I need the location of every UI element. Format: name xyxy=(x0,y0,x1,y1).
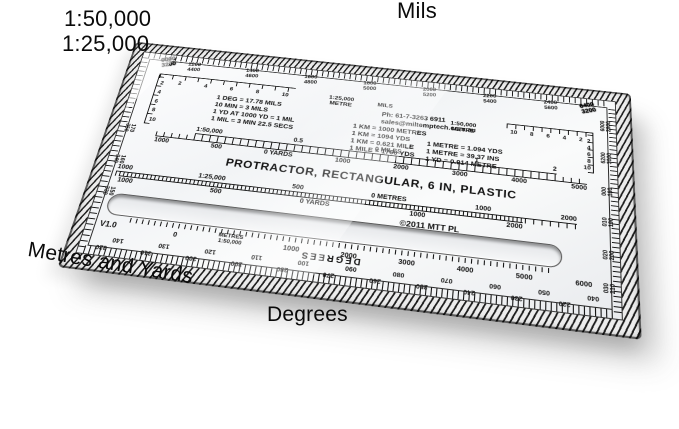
scale-number: 2 xyxy=(579,137,583,143)
number-pair: 12004400 xyxy=(187,63,202,73)
scale-number: 230 xyxy=(511,293,523,302)
scale-number: 2000 xyxy=(561,215,577,223)
scale-number: 220 xyxy=(559,299,571,308)
annotation-degrees: Degrees xyxy=(267,303,348,327)
number-pair: 18005000 xyxy=(363,81,377,91)
number-pair: 60002800 xyxy=(601,120,614,132)
scale-number: 8 xyxy=(151,107,159,113)
scale-number: 050 xyxy=(538,288,550,297)
scale-number: 1 xyxy=(475,158,479,164)
number-pair: 14004600 xyxy=(245,69,259,79)
scale-number: 270 xyxy=(322,271,335,279)
number-pair: 16004800 xyxy=(304,75,318,85)
scale-number: 090 xyxy=(345,264,358,272)
scale-number: 2 xyxy=(159,80,167,86)
scale-number: 8 xyxy=(255,89,260,95)
scale-number: 070 xyxy=(441,276,453,284)
scale-number: 110 xyxy=(251,253,263,261)
scale-number: 10 xyxy=(148,116,157,122)
scale-number: 310 xyxy=(139,248,152,256)
number-pair: 170350 xyxy=(121,123,135,132)
scale-number: 120 xyxy=(204,247,217,255)
scale-number: 8 xyxy=(530,132,534,138)
corner-scale-50000-v-numbers: 246810 xyxy=(583,138,591,171)
scale-number: 6 xyxy=(229,86,234,92)
number-pair: 010190 xyxy=(603,218,616,229)
protractor-board: 00003200 64003200 1200440014004600160048… xyxy=(58,42,642,340)
scale-number: 100 xyxy=(297,259,310,267)
scale-number: 140 xyxy=(112,236,125,244)
scale-number: 6 xyxy=(546,133,550,139)
scale-number: 8 xyxy=(587,158,591,164)
scale-number: 290 xyxy=(230,259,243,267)
scale-number: 250 xyxy=(416,282,428,290)
scale-number: 500 xyxy=(209,188,222,196)
scale-number: 2 xyxy=(177,81,182,87)
scale-number: 4 xyxy=(157,89,165,95)
number-pair: 000180 xyxy=(602,187,615,197)
scale-number: 280 xyxy=(276,265,289,273)
scale-number: 240 xyxy=(463,288,475,297)
version-text: V1.0 xyxy=(99,219,118,229)
scale-number: 130 xyxy=(158,242,171,250)
number-pair: 22005400 xyxy=(483,94,497,105)
scale-number: 080 xyxy=(392,270,404,278)
scale-number: 260 xyxy=(369,276,382,284)
scale-number: 2 xyxy=(553,166,557,172)
scale-number: 300 xyxy=(185,254,198,262)
scale-number: 4 xyxy=(563,135,567,141)
scale-number: 10 xyxy=(584,165,591,172)
scale-number: 6 xyxy=(154,98,162,104)
annotation-scale-25000: 1:25,000 xyxy=(62,31,149,57)
scale-number: 0.5 xyxy=(293,138,304,145)
scale-number: 4 xyxy=(587,145,591,151)
scale-number: 6 xyxy=(587,152,591,158)
photo-stage: 1:50,000 1:25,000 Mils Metres and Yards … xyxy=(0,0,679,429)
number-pair: 62003000 xyxy=(601,152,614,165)
number-pair: 20005200 xyxy=(423,88,436,99)
number-pair: 24005600 xyxy=(544,100,558,111)
annotation-scale-50000: 1:50,000 xyxy=(64,6,151,32)
scale-number: 040 xyxy=(587,294,599,303)
corner-stamp-left: 00003200 xyxy=(161,56,176,68)
annotation-mils: Mils xyxy=(397,0,437,24)
scale-number: 2 xyxy=(587,139,591,145)
scale-number: 4 xyxy=(203,84,208,90)
scale-number: 0 xyxy=(172,232,178,239)
right-edge-mils-pairs: 6000280062003000 xyxy=(601,121,614,165)
number-pair: 030210 xyxy=(604,283,618,295)
scale-number: 060 xyxy=(489,282,501,290)
scale-number: 10 xyxy=(510,129,517,135)
scale-number: 500 xyxy=(210,143,223,150)
number-pair: 020200 xyxy=(603,250,617,261)
scale-number: 10 xyxy=(281,92,289,98)
